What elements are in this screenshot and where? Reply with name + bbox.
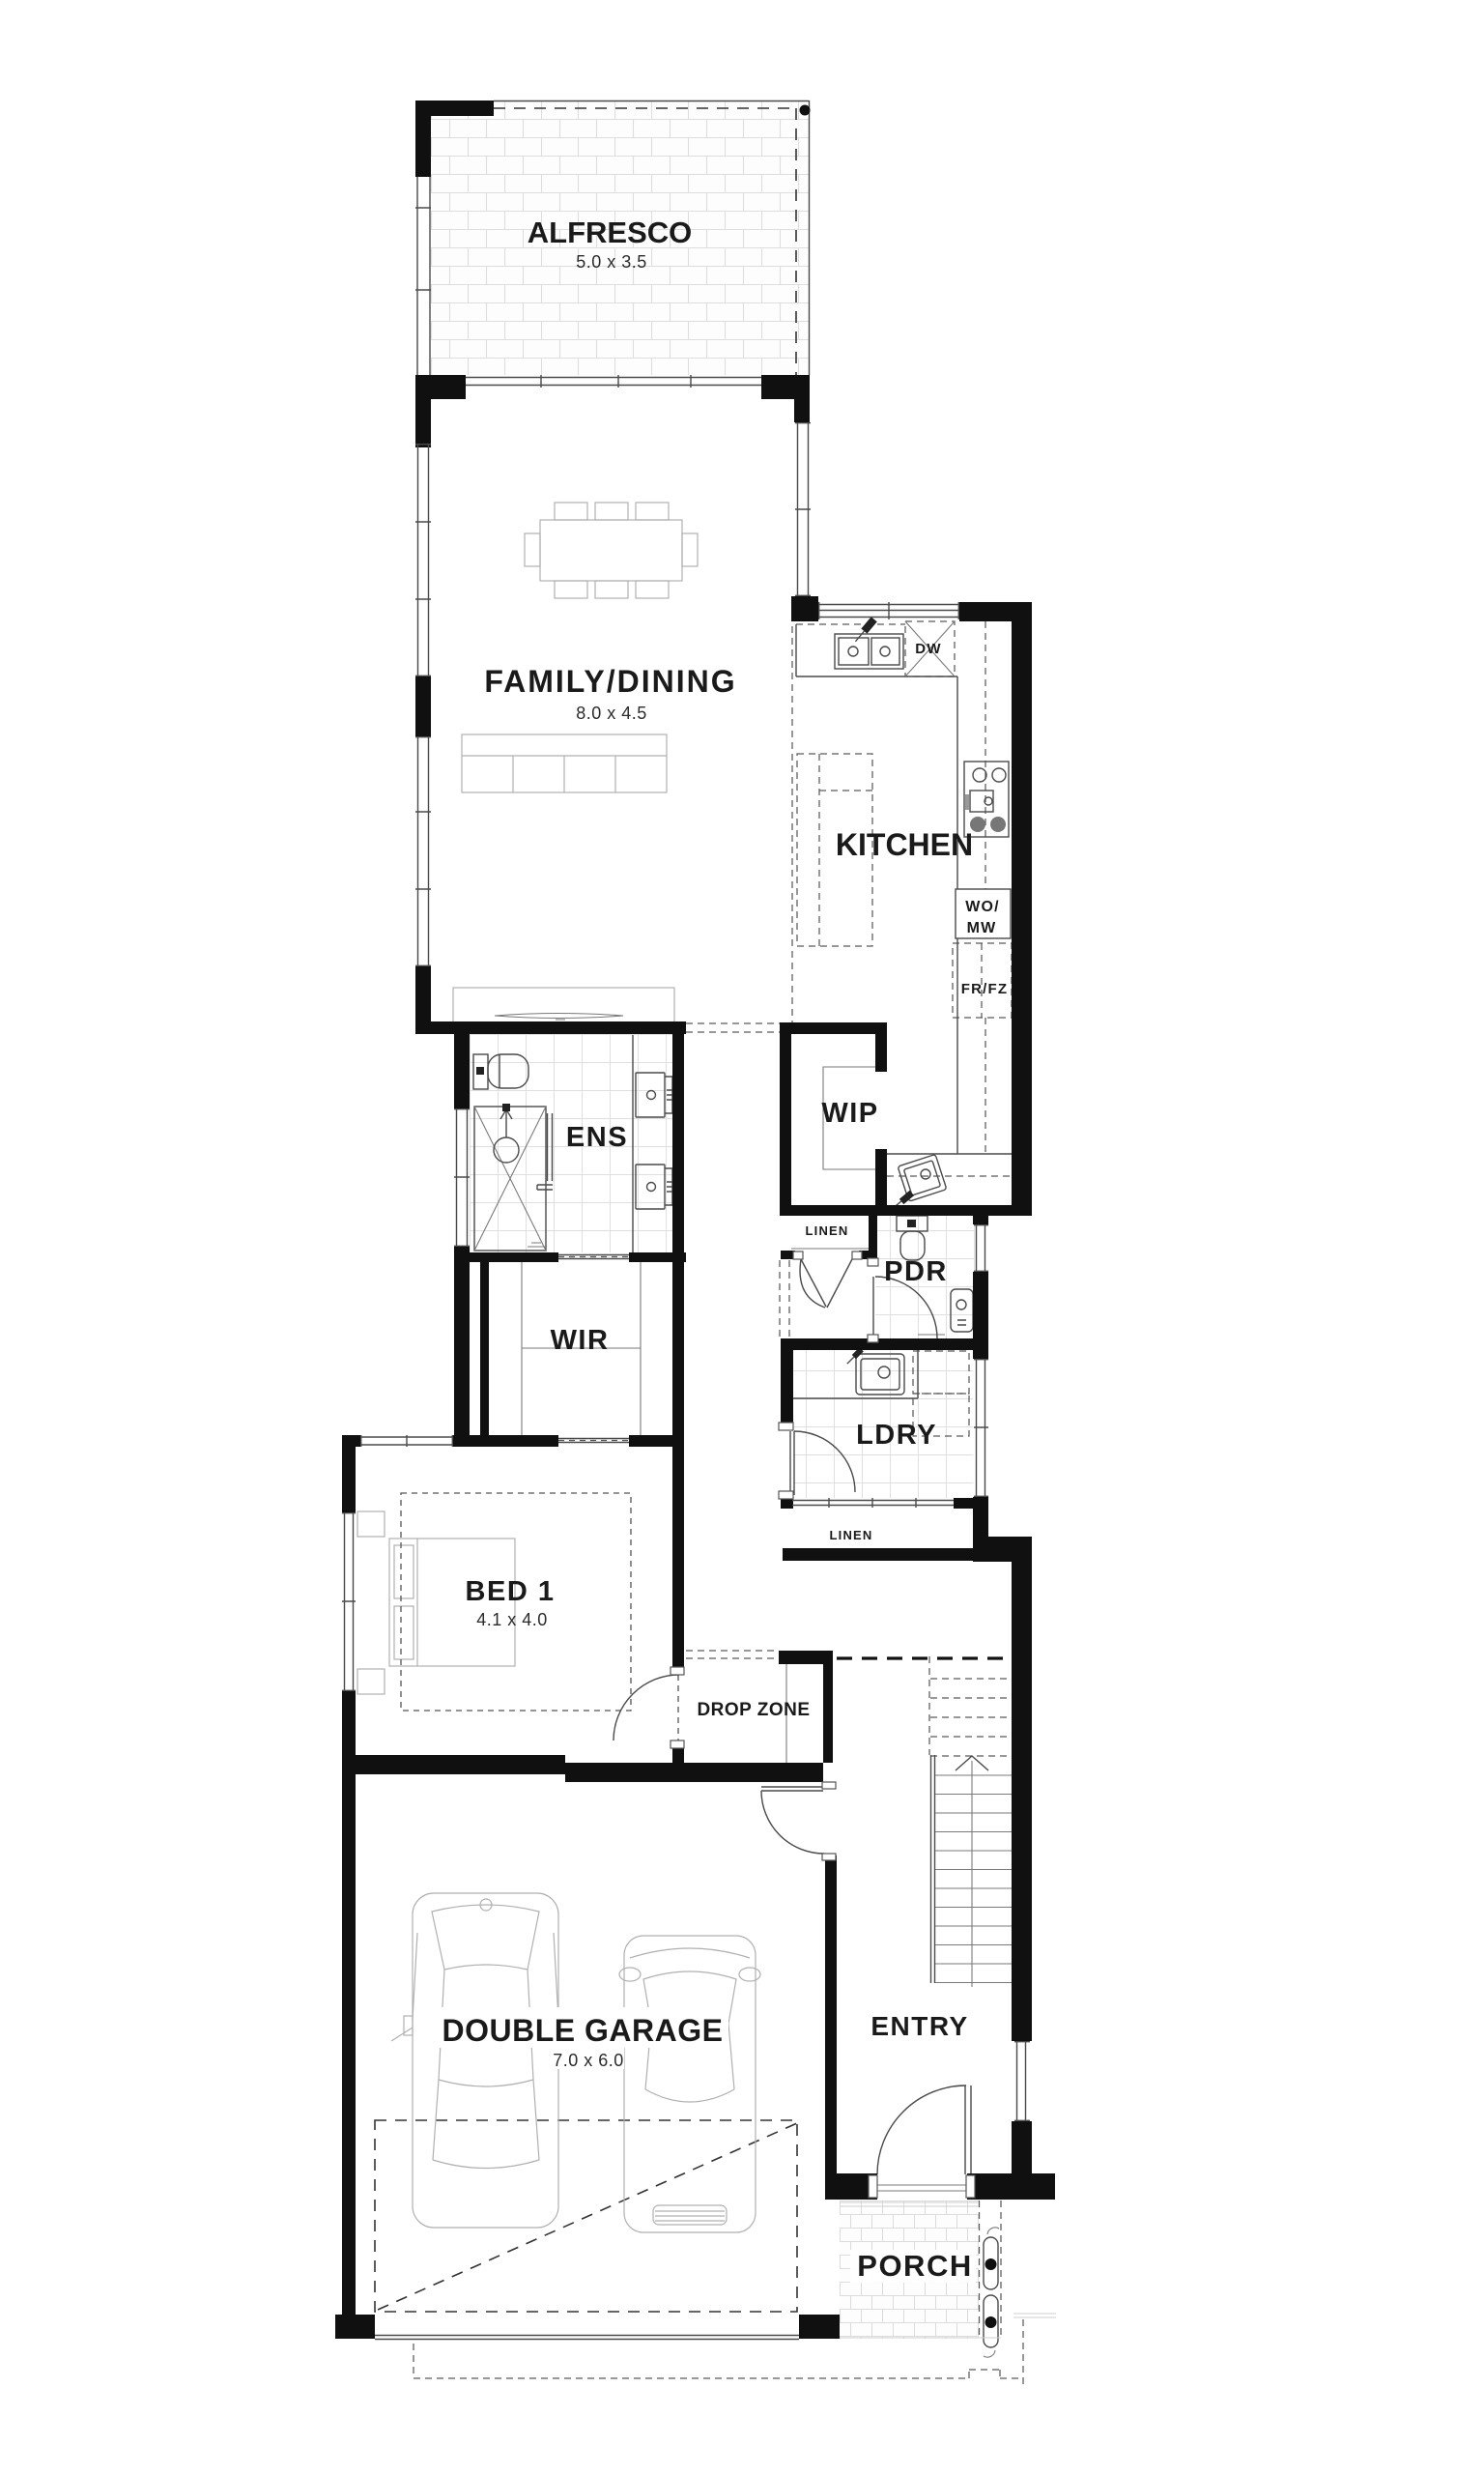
svg-text:7.0 x 6.0: 7.0 x 6.0 — [553, 2051, 624, 2070]
svg-text:FAMILY/DINING: FAMILY/DINING — [484, 664, 736, 699]
svg-text:DW: DW — [915, 641, 941, 657]
svg-text:ENTRY: ENTRY — [870, 2011, 968, 2041]
svg-text:FR/FZ: FR/FZ — [961, 981, 1009, 997]
svg-text:WO/: WO/ — [965, 899, 1000, 915]
svg-text:LINEN: LINEN — [806, 1223, 849, 1238]
svg-text:KITCHEN: KITCHEN — [836, 827, 973, 862]
svg-text:ALFRESCO: ALFRESCO — [528, 216, 693, 249]
svg-text:LDRY: LDRY — [856, 1420, 937, 1451]
svg-text:WIR: WIR — [551, 1325, 610, 1356]
svg-text:DOUBLE GARAGE: DOUBLE GARAGE — [442, 2013, 724, 2048]
svg-text:4.1 x 4.0: 4.1 x 4.0 — [476, 1610, 548, 1629]
svg-text:MW: MW — [967, 920, 997, 936]
svg-text:WIP: WIP — [821, 1098, 878, 1129]
svg-text:PDR: PDR — [884, 1256, 948, 1287]
svg-text:8.0 x 4.5: 8.0 x 4.5 — [576, 704, 647, 723]
svg-text:DROP ZONE: DROP ZONE — [697, 1700, 810, 1720]
svg-text:PORCH: PORCH — [857, 2249, 972, 2283]
svg-text:LINEN: LINEN — [830, 1528, 873, 1542]
svg-text:BED 1: BED 1 — [466, 1576, 556, 1607]
svg-text:ENS: ENS — [566, 1122, 628, 1153]
svg-text:5.0 x 3.5: 5.0 x 3.5 — [576, 252, 647, 272]
